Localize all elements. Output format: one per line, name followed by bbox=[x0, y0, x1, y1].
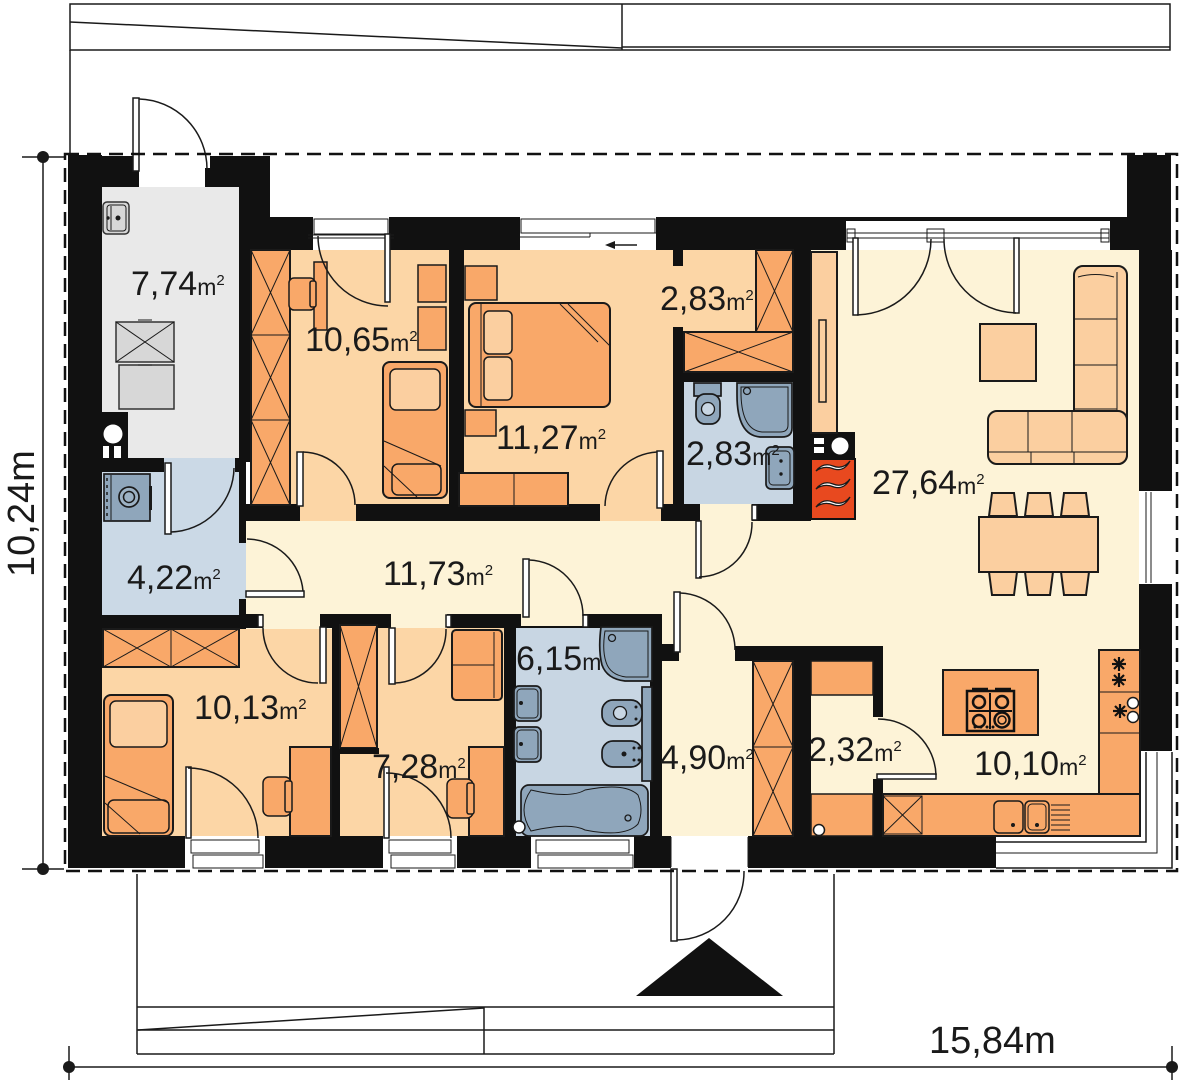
svg-text:10,24m: 10,24m bbox=[1, 450, 43, 577]
svg-text:15,84m: 15,84m bbox=[929, 1020, 1056, 1062]
